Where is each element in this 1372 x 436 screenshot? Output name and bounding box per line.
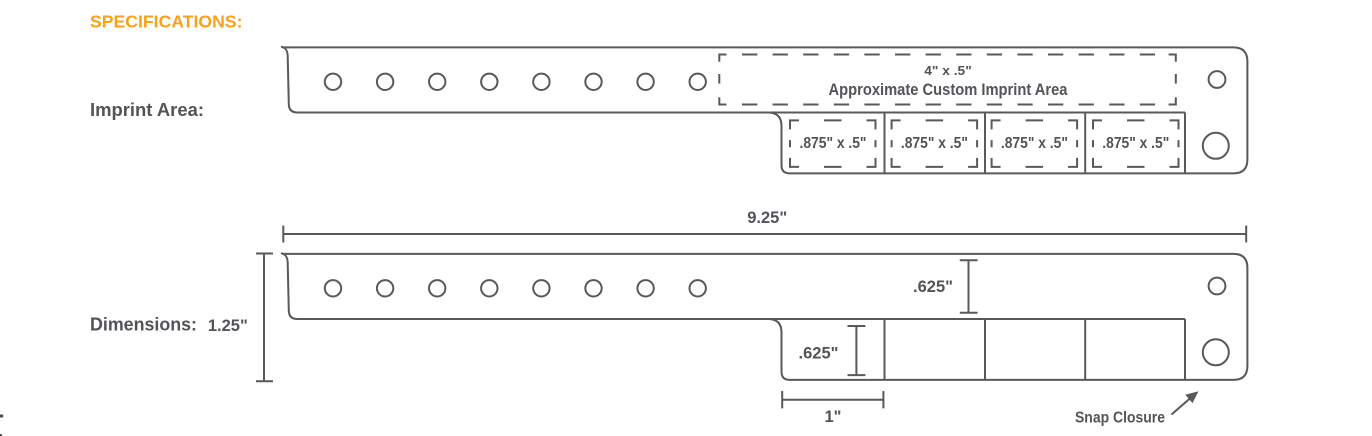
svg-text:Dimensions:: Dimensions: [90,313,197,334]
svg-text:Snap Closure: Snap Closure [1075,409,1165,426]
svg-text:Imprint Area:: Imprint Area: [90,99,204,120]
svg-text:.875" x .5": .875" x .5" [1001,135,1068,152]
svg-text:.625": .625" [913,278,953,296]
svg-text:.875" x .5": .875" x .5" [1102,135,1169,152]
svg-text:1": 1" [825,408,842,426]
svg-text:.875" x .5": .875" x .5" [800,135,867,152]
svg-text:4" x .5": 4" x .5" [924,63,972,78]
svg-text:SPECIFICATIONS:: SPECIFICATIONS: [90,11,242,31]
svg-text:.625": .625" [799,345,839,363]
svg-text:Approximate Custom Imprint Are: Approximate Custom Imprint Area [829,80,1068,99]
svg-text:1.25": 1.25" [208,317,248,335]
svg-text:.875" x .5": .875" x .5" [901,135,968,152]
svg-text:9.25": 9.25" [747,209,787,227]
